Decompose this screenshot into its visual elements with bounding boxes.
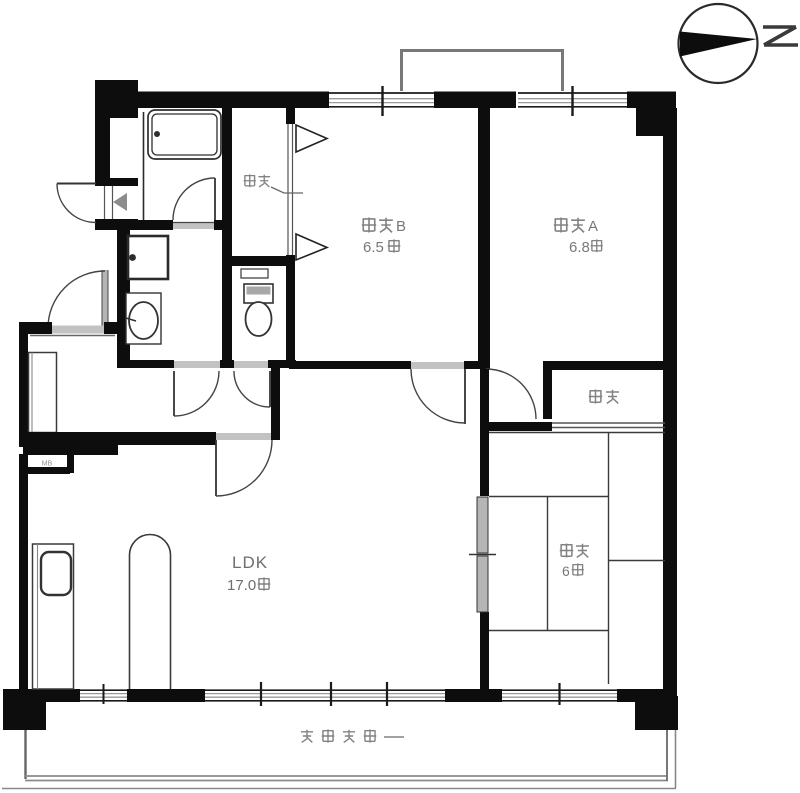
svg-text:A: A bbox=[588, 218, 598, 235]
svg-text:MB: MB bbox=[42, 461, 53, 468]
svg-text:LDK: LDK bbox=[232, 553, 268, 572]
svg-text:17.0: 17.0 bbox=[227, 577, 256, 594]
svg-text:6.5: 6.5 bbox=[363, 239, 384, 256]
svg-text:6: 6 bbox=[562, 563, 570, 579]
svg-text:B: B bbox=[396, 218, 406, 235]
svg-text:6.8: 6.8 bbox=[569, 239, 590, 256]
